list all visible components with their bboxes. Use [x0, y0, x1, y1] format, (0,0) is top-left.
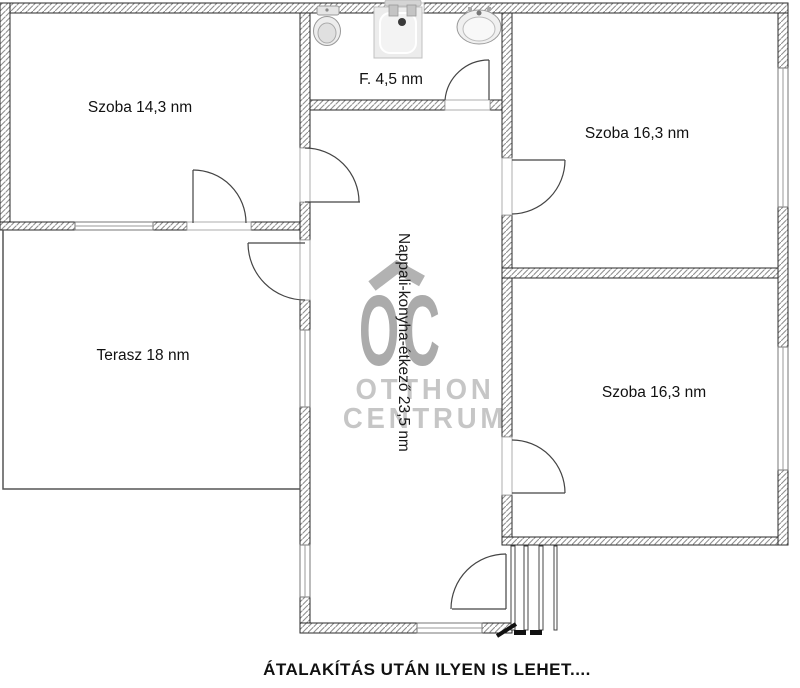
door-bathroom: [445, 60, 489, 100]
caption: ÁTALAKÍTÁS UTÁN ILYEN IS LEHET....: [263, 660, 591, 679]
opening-bathroom: [445, 100, 490, 110]
shower-icon: [374, 0, 422, 58]
wall-szoba-bottom-b: [153, 222, 187, 230]
room-label-terasz: Terasz 18 nm: [96, 347, 189, 364]
opening-szoba-tl-nappali: [300, 148, 310, 202]
watermark: OC OTTHON CENTRUM: [343, 267, 507, 434]
opening-terasz: [300, 240, 310, 300]
wall-left-outer: [0, 3, 10, 230]
window-szoba-br-right: [778, 347, 788, 470]
wall-center-left-c: [300, 300, 310, 330]
wall-right-divider: [502, 268, 788, 278]
wall-right-outer-a: [778, 13, 788, 68]
door-entrance: [451, 554, 506, 609]
door-szoba-tl: [193, 170, 246, 223]
watermark-line1: OTTHON: [355, 372, 494, 405]
door-szoba-br: [512, 440, 565, 493]
wall-szoba-bottom-a: [0, 222, 75, 230]
wall-center-left-d: [300, 407, 310, 545]
window-szoba-tr-right: [778, 68, 788, 207]
door-szoba-tr: [512, 160, 565, 214]
wall-center-left-b: [300, 202, 310, 240]
floorplan-image: OC OTTHON CENTRUM Szoba 14,3 nm F. 4,5 n…: [0, 0, 800, 688]
room-label-szoba-top-left: Szoba 14,3 nm: [88, 99, 192, 116]
window-nappali-bottom: [417, 623, 482, 633]
room-label-bathroom: F. 4,5 nm: [359, 71, 423, 88]
stair-mark-2: [530, 630, 542, 635]
window-terasz-wall: [300, 330, 310, 407]
wall-right-bottom: [502, 537, 788, 545]
room-label-nappali: Nappali-konyha-étkező 23,5 nm: [395, 233, 412, 452]
window-nappali-left: [300, 545, 310, 597]
door-szoba-tl-to-nappali: [305, 148, 360, 202]
door-terasz: [248, 243, 305, 300]
window-szoba-tl-bottom: [75, 222, 153, 230]
stair-mark-1: [514, 630, 526, 635]
floorplan-svg: OC OTTHON CENTRUM Szoba 14,3 nm F. 4,5 n…: [0, 0, 800, 688]
opening-szoba-tl: [187, 222, 251, 230]
wall-center-left-a: [300, 13, 310, 148]
room-label-szoba-bottom-right: Szoba 16,3 nm: [602, 384, 706, 401]
toilet-icon: [314, 6, 341, 46]
opening-szoba-br: [502, 437, 512, 495]
room-label-szoba-top-right: Szoba 16,3 nm: [585, 125, 689, 142]
wall-nappali-bottom-a: [300, 623, 417, 633]
wall-center-right-a: [502, 13, 512, 158]
wall-right-outer-c: [778, 470, 788, 545]
opening-szoba-tr: [502, 158, 512, 215]
watermark-line2: CENTRUM: [343, 401, 507, 434]
wall-bath-bottom-a: [310, 100, 445, 110]
wall-right-outer-b: [778, 207, 788, 347]
